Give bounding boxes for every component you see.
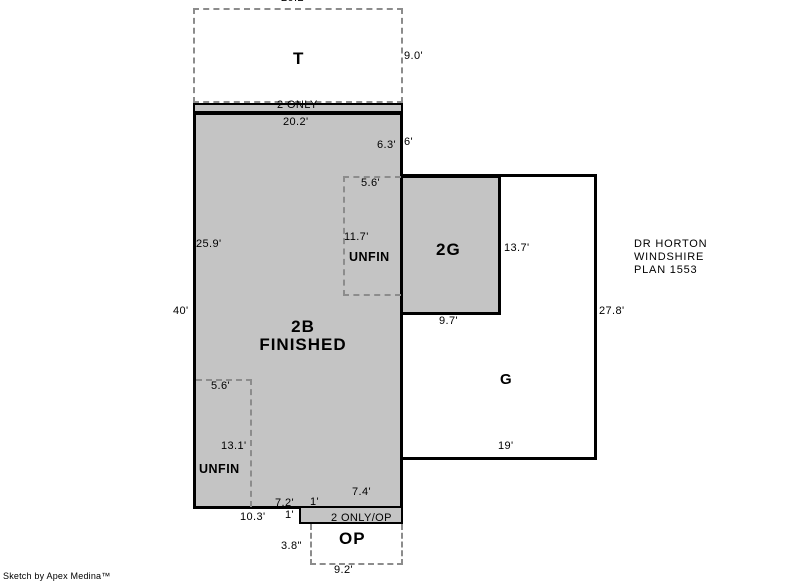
b2-right-inner-dim: 6.3': [377, 140, 396, 151]
b2-right-outer-dim: 6': [404, 137, 413, 148]
unfin-lower-label: UNFIN: [199, 463, 240, 476]
two-only-strip-label: 2 ONLY: [277, 100, 318, 111]
plan-note-line3: PLAN 1553: [634, 264, 707, 277]
bottom-left-segment-dim: 10.3': [240, 512, 266, 523]
plan-note: DR HORTON WINDSHIRE PLAN 1553: [634, 238, 707, 277]
unfin-lower-height-dim: 13.1': [221, 441, 247, 452]
step-top-width-dim: 1': [310, 497, 319, 508]
t-area-label: T: [293, 50, 304, 68]
b2-width-top-dim: 20.2': [283, 117, 309, 128]
b2-area-label-line1: 2B: [259, 318, 346, 336]
g2-height-right-dim: 13.7': [504, 243, 530, 254]
two-only-op-strip-label: 2 ONLY/OP: [331, 513, 392, 524]
op-width-bottom-dim: 9.2': [334, 565, 353, 576]
g-width-bottom-dim: 19': [498, 441, 514, 452]
plan-note-line2: WINDSHIRE: [634, 251, 707, 264]
step-height-dim: 1': [285, 510, 294, 521]
op-height-left-dim: 3.8": [281, 541, 302, 552]
g-height-right-dim: 27.8': [599, 306, 625, 317]
t-height-right-dim: 9.0': [404, 51, 423, 62]
step-width-top-dim: 7.4': [352, 487, 371, 498]
b2-area-label: 2B FINISHED: [259, 318, 346, 354]
b2-height-left-dim: 40': [173, 306, 189, 317]
unfin-lower-width-dim: 5.6': [211, 381, 230, 392]
g2-width-bottom-dim: 9.7': [439, 316, 458, 327]
b2-left-segment-dim: 25.9': [196, 239, 222, 250]
unfin-upper-label: UNFIN: [349, 251, 390, 264]
t-width-top-dim: 20.2': [281, 0, 307, 4]
floor-plan-sketch: 20.2' T 9.0' 2 ONLY 20.2' 6.3' 6' 25.9' …: [0, 0, 800, 587]
sketch-credit: Sketch by Apex Medina™: [3, 571, 110, 582]
plan-note-line1: DR HORTON: [634, 238, 707, 251]
op-area-label: OP: [339, 530, 366, 548]
g2-area-label: 2G: [436, 241, 461, 259]
b2-area-label-line2: FINISHED: [259, 336, 346, 354]
step-top-left-dim: 7.2': [275, 498, 294, 509]
g-area-label: G: [500, 372, 513, 387]
unfin-upper-height-dim: 11.7': [344, 232, 369, 243]
unfin-upper-width-dim: 5.6': [361, 178, 380, 189]
